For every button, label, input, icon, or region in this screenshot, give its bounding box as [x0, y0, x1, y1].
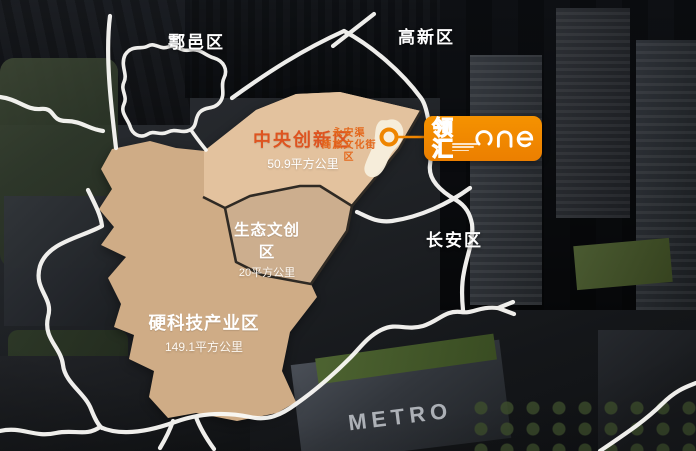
poi-label: 永安渠 商旅文化街区 — [318, 128, 380, 164]
labels-layer: 鄠邑区 高新区 长安区 中央创新区 50.9平方公里 永安渠 商旅文化街区 生态… — [0, 0, 696, 451]
district-eco-area: 20平方公里 — [226, 264, 308, 280]
promo-map: 鄠邑区 高新区 长安区 中央创新区 50.9平方公里 永安渠 商旅文化街区 生态… — [0, 0, 696, 451]
region-label-huyi: 鄠邑区 — [168, 28, 225, 53]
district-hardtech-label: 硬科技产业区 149.1平方公里 — [148, 310, 260, 355]
poi-label-line1: 永安渠 — [318, 128, 380, 140]
district-eco-label: 生态文创区 20平方公里 — [226, 218, 308, 280]
poi-label-line2: 商旅文化街区 — [318, 140, 380, 164]
logo-subtext-lines — [452, 143, 478, 153]
district-eco-name: 生态文创区 — [226, 218, 308, 262]
logo-one-glyphs — [475, 124, 534, 154]
district-hardtech-area: 149.1平方公里 — [148, 338, 260, 355]
region-label-gaoxin: 高新区 — [398, 23, 455, 48]
district-hardtech-name: 硬科技产业区 — [148, 310, 260, 335]
metro-sign-text: METRO — [347, 398, 454, 437]
region-label-changan: 长安区 — [426, 226, 483, 251]
linghui-one-logo: 领汇 — [424, 116, 542, 161]
logo-cn-text: 领汇 — [432, 118, 472, 160]
